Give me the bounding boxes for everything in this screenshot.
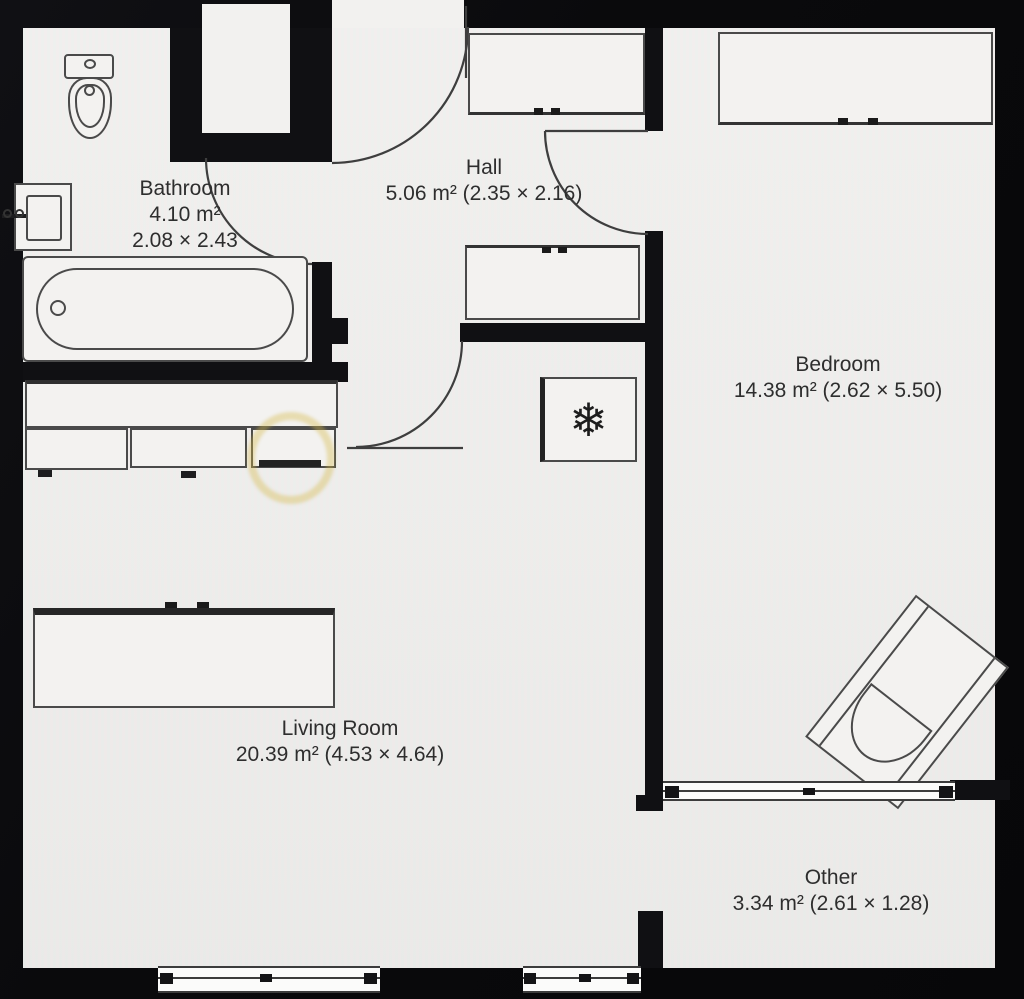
window-cap: [364, 973, 377, 984]
room-detail: 14.38 m² (2.62 × 5.50): [734, 378, 942, 404]
floor-plan: ❄ B: [0, 0, 1024, 999]
sofa-tick: [197, 602, 209, 608]
room-name: Bedroom: [734, 352, 942, 378]
window-tick: [803, 788, 815, 795]
living-room-window-left: [158, 966, 380, 993]
window-cap: [939, 786, 953, 798]
bathtub: [22, 256, 308, 362]
wall-bathroom-step: [332, 318, 348, 344]
window-cap: [665, 786, 679, 798]
room-label-other: Other 3.34 m² (2.61 × 1.28): [733, 865, 930, 917]
wall-hall-bedroom-lower: [645, 231, 663, 795]
snowflake-icon: ❄: [540, 377, 637, 462]
room-detail: 3.34 m² (2.61 × 1.28): [733, 891, 930, 917]
bedroom-window: [663, 781, 955, 801]
sink-basin: [26, 195, 62, 241]
room-label-living-room: Living Room 20.39 m² (4.53 × 4.64): [236, 716, 444, 768]
cabinet-handle: [542, 247, 551, 253]
window-cap: [627, 973, 639, 984]
hall-cabinet: [465, 245, 640, 320]
wall-bedroom-bottom: [950, 780, 1010, 800]
highlight-annotation: [247, 412, 335, 504]
cabinet-handle: [558, 247, 567, 253]
window-tick: [260, 974, 272, 982]
wall-bathroom-bottom: [23, 362, 348, 382]
room-dims: 2.08 × 2.43: [132, 228, 238, 254]
faucet-knob-icon: [3, 209, 12, 218]
toilet-tank-icon: [64, 54, 114, 79]
wall-duct-bottom: [170, 133, 332, 162]
living-room-sofa: [33, 608, 335, 708]
window-cap: [524, 973, 536, 984]
sofa-tick: [165, 602, 177, 608]
room-name: Bathroom: [132, 176, 238, 202]
closet-handle: [551, 108, 560, 115]
wall-hall-bedroom-upper: [645, 28, 663, 131]
toilet-drain-icon: [84, 85, 95, 96]
faucet-knob-icon: [15, 209, 24, 218]
toilet-button-icon: [84, 59, 96, 69]
room-label-bathroom: Bathroom 4.10 m² 2.08 × 2.43: [132, 176, 238, 254]
counter-tick: [38, 470, 52, 477]
room-name: Other: [733, 865, 930, 891]
window-tick: [579, 974, 591, 982]
room-label-bedroom: Bedroom 14.38 m² (2.62 × 5.50): [734, 352, 942, 404]
room-label-hall: Hall 5.06 m² (2.35 × 2.16): [386, 155, 583, 207]
living-room-window-right: [523, 966, 641, 993]
wardrobe-handle: [868, 118, 878, 125]
closet-handle: [534, 108, 543, 115]
wardrobe-handle: [838, 118, 848, 125]
window-cap: [160, 973, 173, 984]
room-name: Hall: [386, 155, 583, 181]
bathtub-inner: [36, 268, 294, 350]
wall-cap: [636, 795, 663, 811]
room-detail: 5.06 m² (2.35 × 2.16): [386, 181, 583, 207]
kitchen-cabinet-unit: [130, 428, 247, 468]
entry-door-opening: [332, 0, 464, 28]
kitchen-sink-unit: [25, 428, 128, 470]
counter-tick: [181, 471, 196, 478]
room-detail: 20.39 m² (4.53 × 4.64): [236, 742, 444, 768]
room-area: 4.10 m²: [132, 202, 238, 228]
bedroom-wardrobe: [718, 32, 993, 125]
bathtub-drain-icon: [50, 300, 66, 316]
hall-closet: [468, 33, 645, 115]
room-name: Living Room: [236, 716, 444, 742]
wall-hall-bottom: [460, 323, 662, 342]
wall-other-left: [638, 911, 663, 968]
wall-bathroom-right: [312, 262, 332, 382]
duct-shaft: [202, 4, 290, 133]
